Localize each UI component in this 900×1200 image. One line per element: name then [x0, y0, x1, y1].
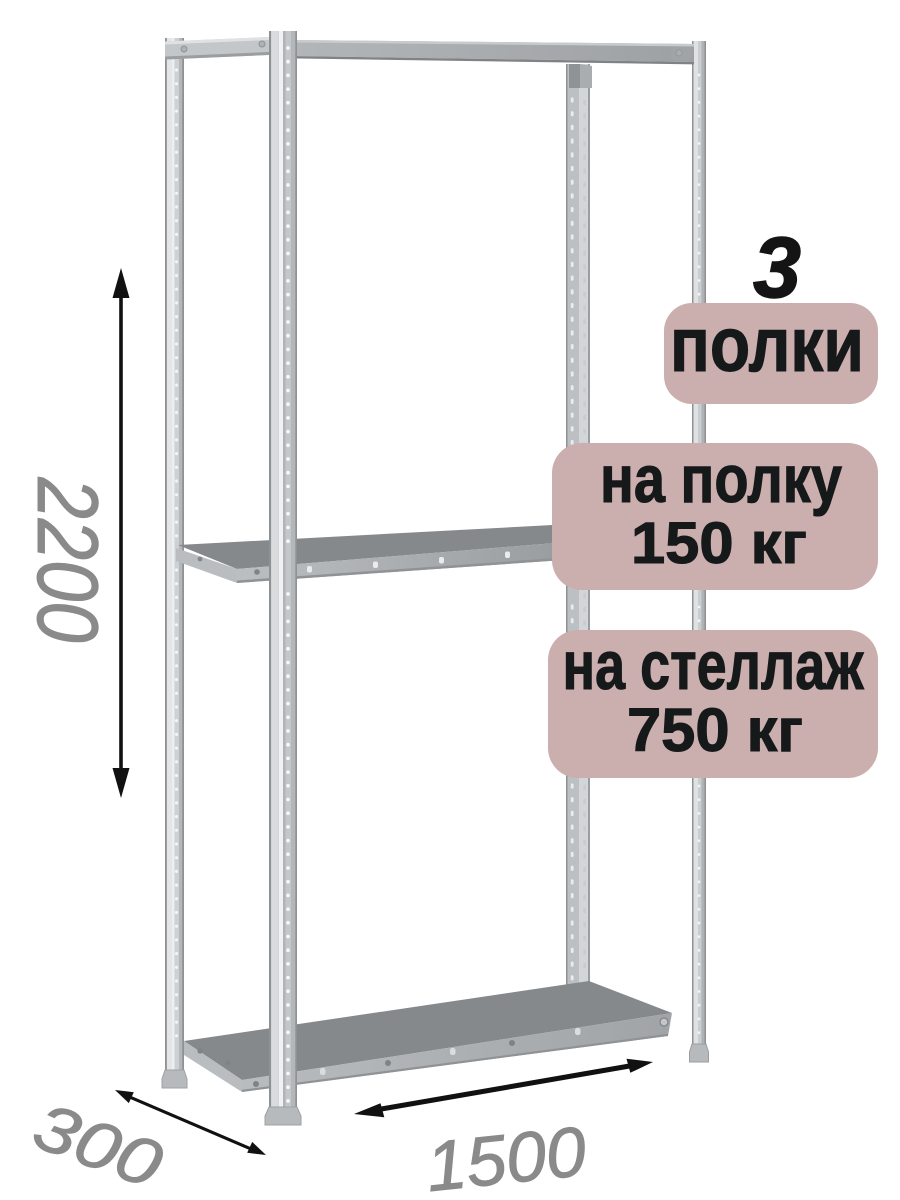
svg-text:150 кг: 150 кг	[631, 511, 807, 576]
svg-text:на стеллаж: на стеллаж	[563, 627, 865, 704]
svg-text:на полку: на полку	[600, 442, 842, 517]
svg-text:2200: 2200	[19, 477, 115, 643]
svg-text:полки: полки	[670, 302, 864, 388]
svg-text:750 кг: 750 кг	[627, 696, 803, 764]
svg-text:1500: 1500	[422, 1112, 589, 1200]
